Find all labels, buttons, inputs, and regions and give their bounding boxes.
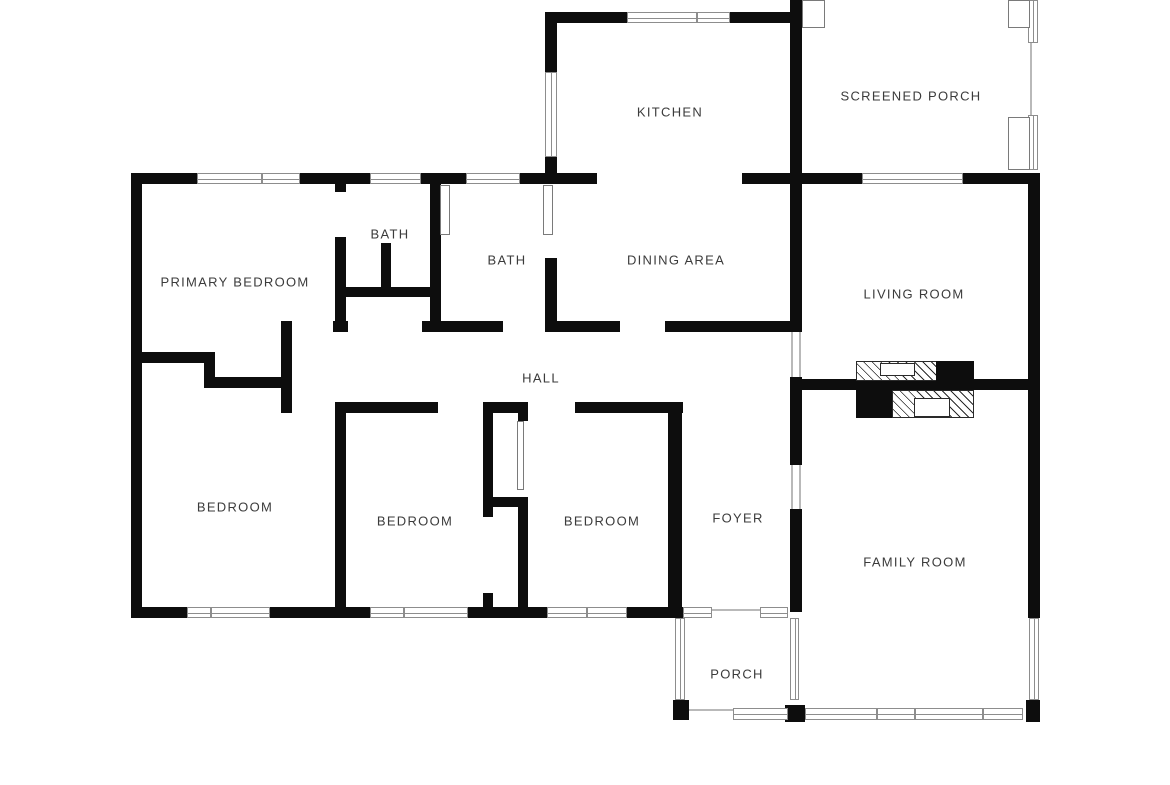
window-pane-line — [1033, 1, 1034, 42]
room-label: BATH — [488, 253, 527, 268]
wall-segment — [131, 173, 142, 618]
window-pane-line — [1033, 116, 1034, 169]
door-leaf — [1008, 117, 1030, 170]
window-pane-line — [371, 179, 420, 180]
window — [370, 607, 404, 618]
door-leaf — [440, 185, 450, 235]
window — [733, 708, 788, 720]
window — [627, 12, 697, 23]
screen-line — [791, 465, 793, 509]
wall-segment — [1028, 173, 1040, 618]
window-pane-line — [548, 613, 586, 614]
window-pane-line — [371, 613, 403, 614]
fireplace-firebox — [914, 398, 950, 417]
door-leaf — [1008, 0, 1030, 28]
window — [697, 12, 730, 23]
room-label: DINING AREA — [627, 253, 725, 268]
door-leaf — [543, 185, 553, 235]
window — [805, 708, 877, 720]
wall-segment — [381, 243, 391, 297]
window — [547, 607, 587, 618]
window — [262, 173, 300, 184]
window-pane-line — [588, 613, 626, 614]
room-label: FOYER — [712, 511, 763, 526]
window-pane-line — [188, 613, 210, 614]
window-pane-line — [212, 613, 269, 614]
wall-segment — [131, 607, 187, 618]
room-label: PORCH — [710, 667, 763, 682]
window — [983, 708, 1023, 720]
window — [545, 72, 557, 157]
wall-segment — [790, 0, 802, 184]
window — [211, 607, 270, 618]
wall-segment — [790, 509, 802, 612]
fireplace-masonry — [856, 390, 892, 418]
window — [862, 173, 963, 184]
window — [1029, 618, 1039, 700]
room-label: HALL — [522, 371, 560, 386]
wall-segment — [790, 377, 802, 465]
screen-line — [791, 332, 793, 377]
window-pane-line — [551, 73, 552, 156]
wall-segment — [802, 173, 862, 184]
window-pane-line — [795, 619, 796, 699]
screen-line — [799, 465, 801, 509]
wall-segment — [468, 607, 547, 618]
room-label: BATH — [371, 227, 410, 242]
wall-segment — [335, 402, 438, 413]
wall-segment — [281, 321, 292, 413]
wall-segment — [785, 705, 805, 722]
window — [466, 173, 520, 184]
window — [790, 618, 799, 700]
screen-line — [712, 609, 760, 611]
window — [915, 708, 983, 720]
window-pane-line — [198, 179, 261, 180]
window — [877, 708, 915, 720]
wall-segment — [545, 258, 557, 332]
screen-line — [689, 709, 733, 711]
room-label: KITCHEN — [637, 105, 703, 120]
wall-segment — [673, 700, 689, 720]
window-pane-line — [467, 179, 519, 180]
wall-segment — [665, 321, 802, 332]
wall-segment — [270, 607, 370, 618]
wall-segment — [627, 607, 683, 618]
window-pane-line — [863, 179, 962, 180]
window — [404, 607, 468, 618]
window-pane-line — [984, 714, 1022, 715]
wall-segment — [421, 173, 466, 184]
window-pane-line — [734, 714, 787, 715]
wall-segment — [520, 173, 597, 184]
window — [187, 607, 211, 618]
window — [370, 173, 421, 184]
wall-segment — [668, 406, 682, 618]
wall-segment — [548, 321, 620, 332]
wall-segment — [545, 12, 557, 72]
window-pane-line — [263, 179, 299, 180]
window-pane-line — [680, 619, 681, 699]
window-pane-line — [405, 613, 467, 614]
wall-segment — [335, 402, 346, 618]
wall-segment — [575, 402, 683, 413]
window-pane-line — [628, 18, 696, 19]
window-pane-line — [878, 714, 914, 715]
room-label: PRIMARY BEDROOM — [160, 275, 309, 290]
room-label: BEDROOM — [564, 514, 640, 529]
screen-line — [1030, 43, 1032, 115]
wall-segment — [790, 184, 802, 332]
room-label: FAMILY ROOM — [863, 555, 966, 570]
room-label: LIVING ROOM — [864, 287, 965, 302]
floorplan-canvas: KITCHENSCREENED PORCHBATHBATHDINING AREA… — [0, 0, 1170, 785]
window — [760, 607, 788, 618]
window — [587, 607, 627, 618]
wall-segment — [518, 497, 528, 618]
fireplace-firebox — [880, 363, 915, 376]
window-pane-line — [698, 18, 729, 19]
wall-segment — [483, 402, 528, 413]
wall-segment — [548, 12, 627, 23]
window-pane-line — [684, 613, 711, 614]
fireplace-masonry — [936, 361, 974, 381]
wall-segment — [215, 377, 292, 388]
room-label: BEDROOM — [377, 514, 453, 529]
screen-line — [799, 332, 801, 377]
room-label: BEDROOM — [197, 500, 273, 515]
wall-segment — [300, 173, 370, 184]
wall-segment — [545, 157, 557, 184]
window — [197, 173, 262, 184]
room-label: SCREENED PORCH — [841, 89, 982, 104]
wall-segment — [204, 352, 215, 388]
window-pane-line — [761, 613, 787, 614]
wall-segment — [335, 184, 346, 192]
window — [675, 618, 685, 700]
wall-segment — [335, 237, 346, 327]
door-leaf — [802, 0, 825, 28]
door-leaf — [517, 421, 524, 490]
window — [683, 607, 712, 618]
window-pane-line — [806, 714, 876, 715]
wall-segment — [518, 413, 528, 421]
window-pane-line — [1034, 619, 1035, 699]
wall-segment — [1026, 700, 1040, 722]
window-pane-line — [916, 714, 982, 715]
